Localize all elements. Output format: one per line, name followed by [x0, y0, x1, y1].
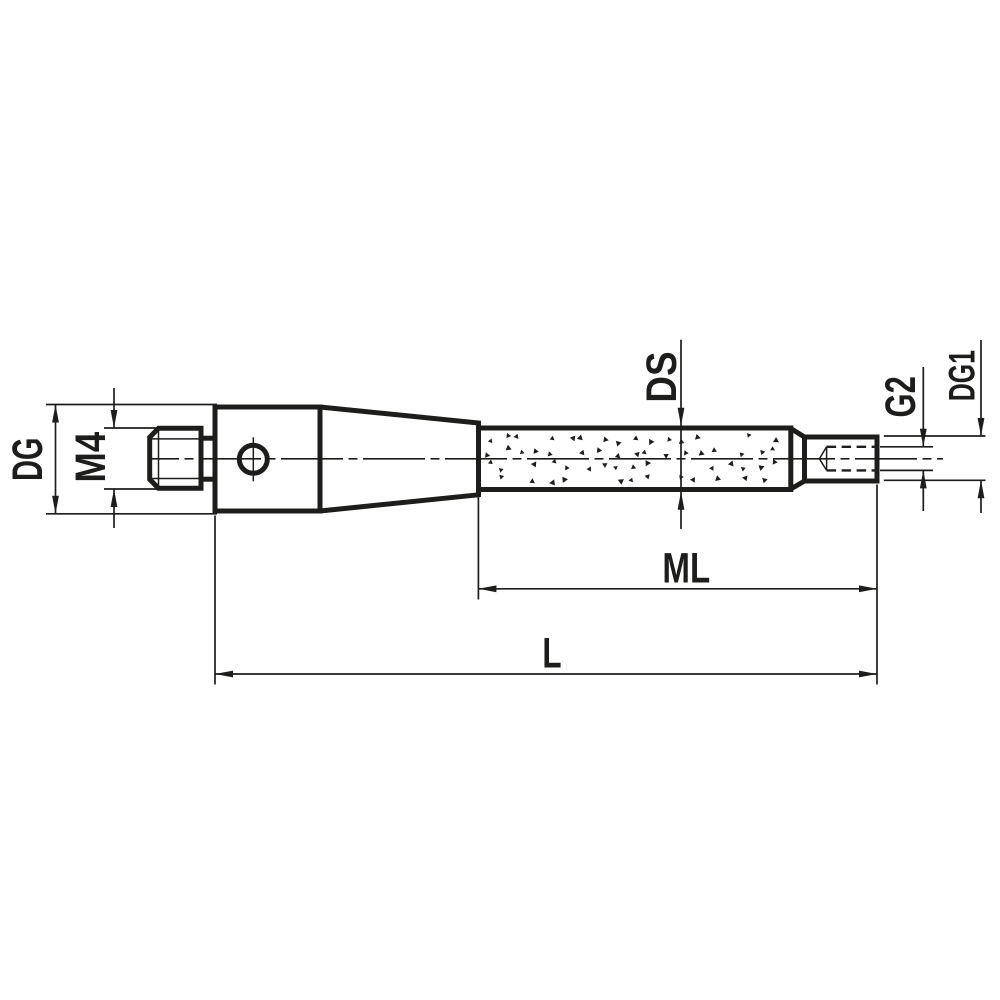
svg-text:DS: DS	[638, 351, 685, 402]
svg-text:ML: ML	[662, 544, 710, 592]
svg-text:DG1: DG1	[940, 350, 982, 401]
svg-text:L: L	[542, 629, 561, 677]
svg-text:G2: G2	[876, 376, 924, 417]
svg-text:M4: M4	[67, 432, 114, 483]
svg-text:DG: DG	[3, 438, 51, 481]
